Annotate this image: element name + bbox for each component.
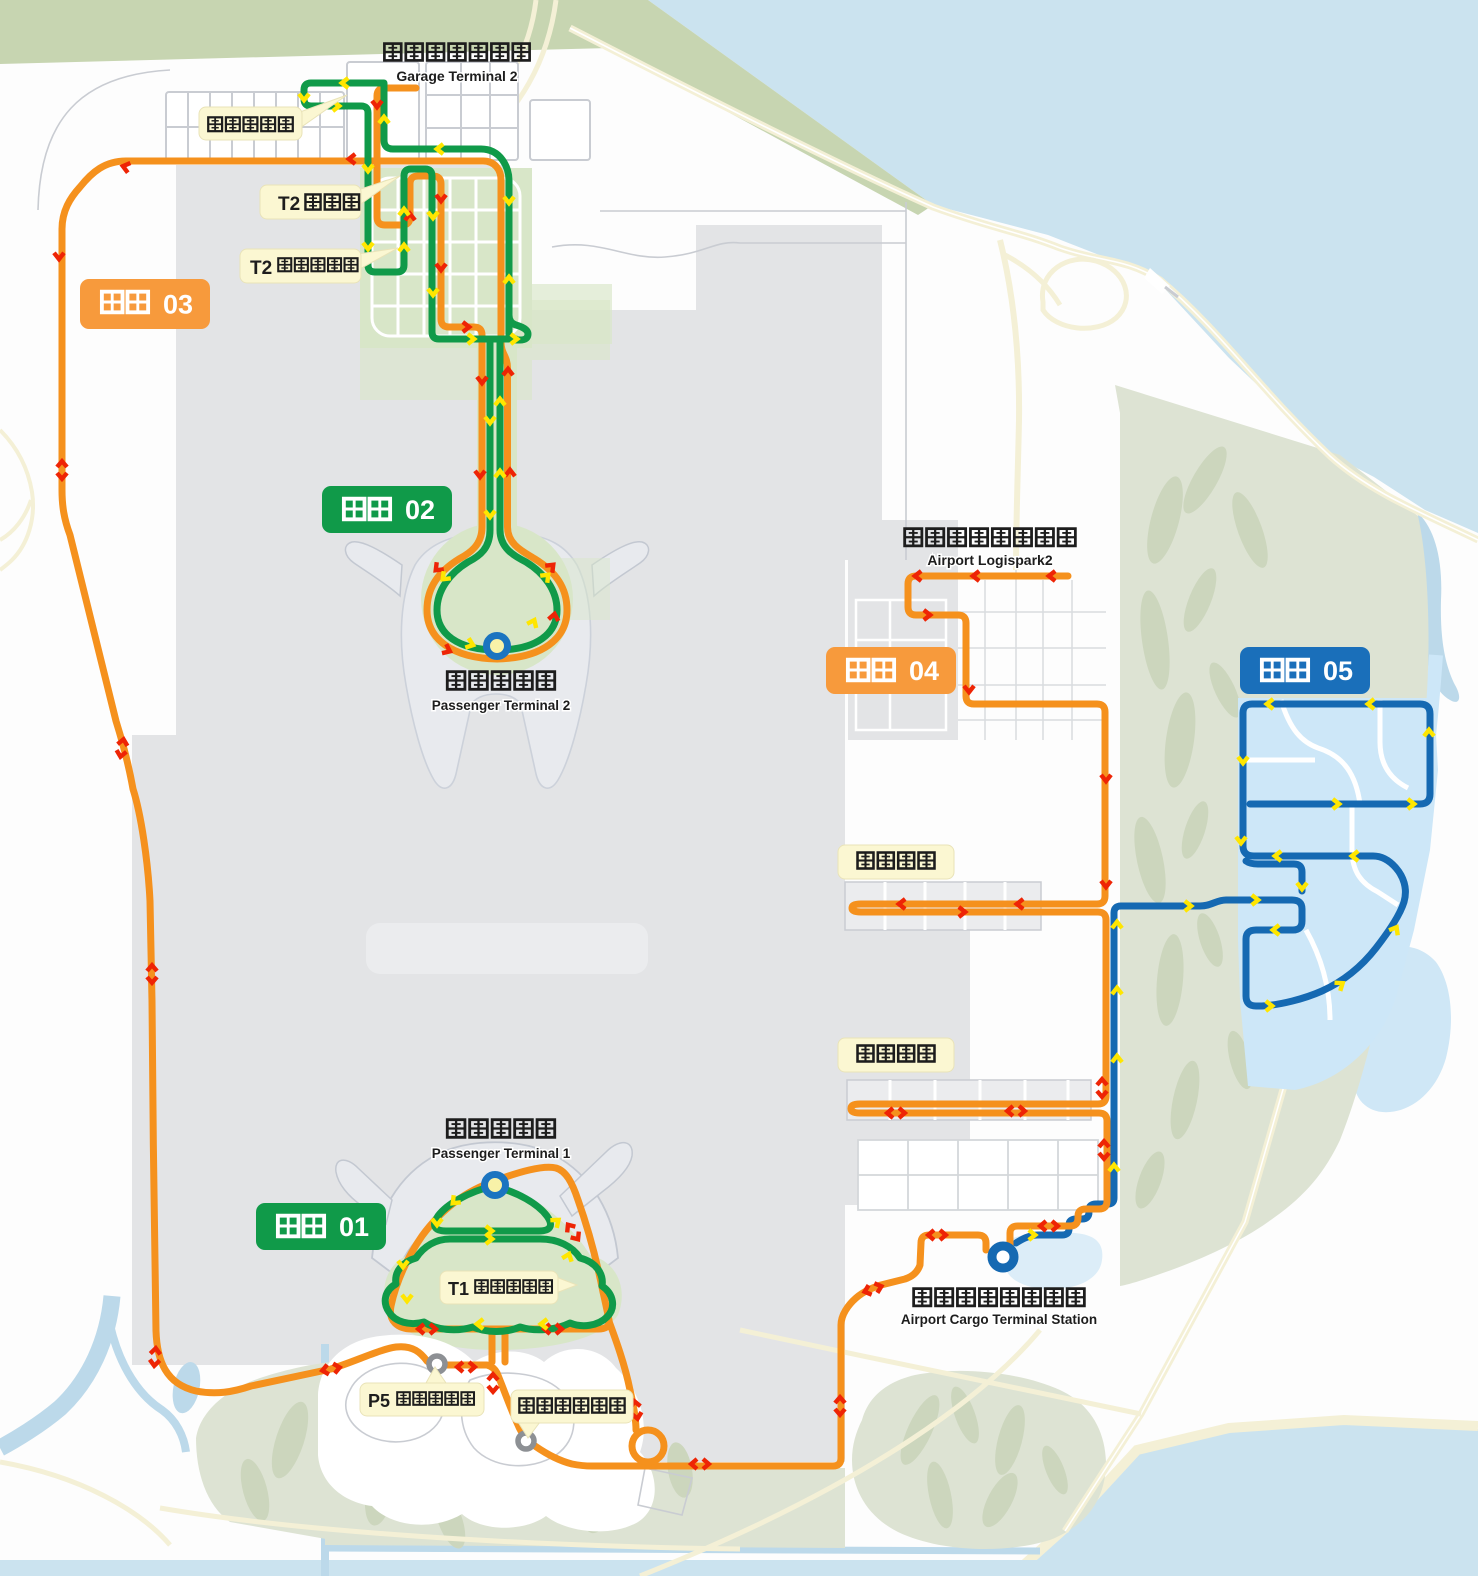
svg-text:03: 03 [163,290,193,320]
svg-text:T2: T2 [250,258,272,279]
svg-text:T2: T2 [278,194,300,215]
svg-text:02: 02 [405,495,435,525]
svg-text:Passenger Terminal 1: Passenger Terminal 1 [432,1146,571,1161]
svg-text:T1: T1 [448,1279,469,1299]
svg-text:Airport Cargo Terminal Station: Airport Cargo Terminal Station [901,1312,1097,1327]
svg-text:04: 04 [909,656,939,686]
svg-text:Garage Terminal 2: Garage Terminal 2 [396,68,517,84]
svg-text:P5: P5 [368,1391,390,1411]
svg-text:05: 05 [1323,656,1353,686]
svg-text:01: 01 [339,1212,369,1242]
svg-text:Airport Logispark2: Airport Logispark2 [927,552,1052,568]
svg-text:Passenger Terminal 2: Passenger Terminal 2 [432,698,571,713]
